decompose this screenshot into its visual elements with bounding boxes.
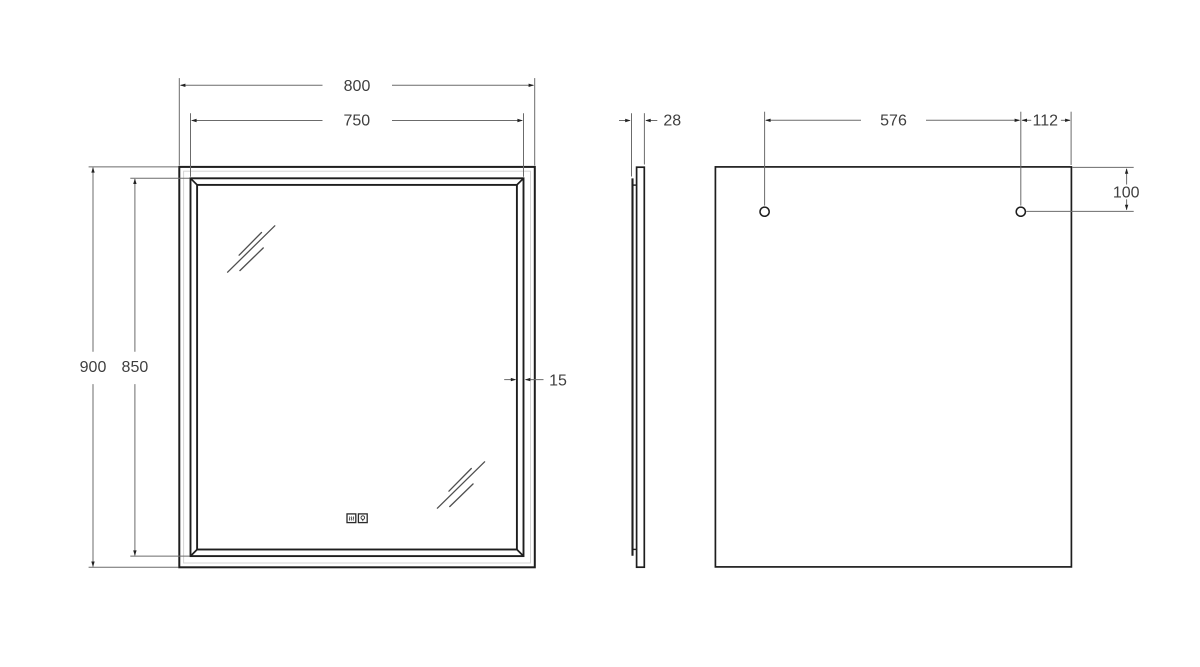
svg-text:900: 900 [80,359,107,376]
svg-text:28: 28 [663,113,681,130]
svg-text:800: 800 [344,78,371,95]
svg-text:15: 15 [549,372,567,389]
svg-text:112: 112 [1033,113,1059,130]
svg-text:576: 576 [880,113,907,130]
svg-text:850: 850 [122,359,149,376]
svg-text:750: 750 [343,113,370,130]
svg-text:100: 100 [1113,185,1140,202]
